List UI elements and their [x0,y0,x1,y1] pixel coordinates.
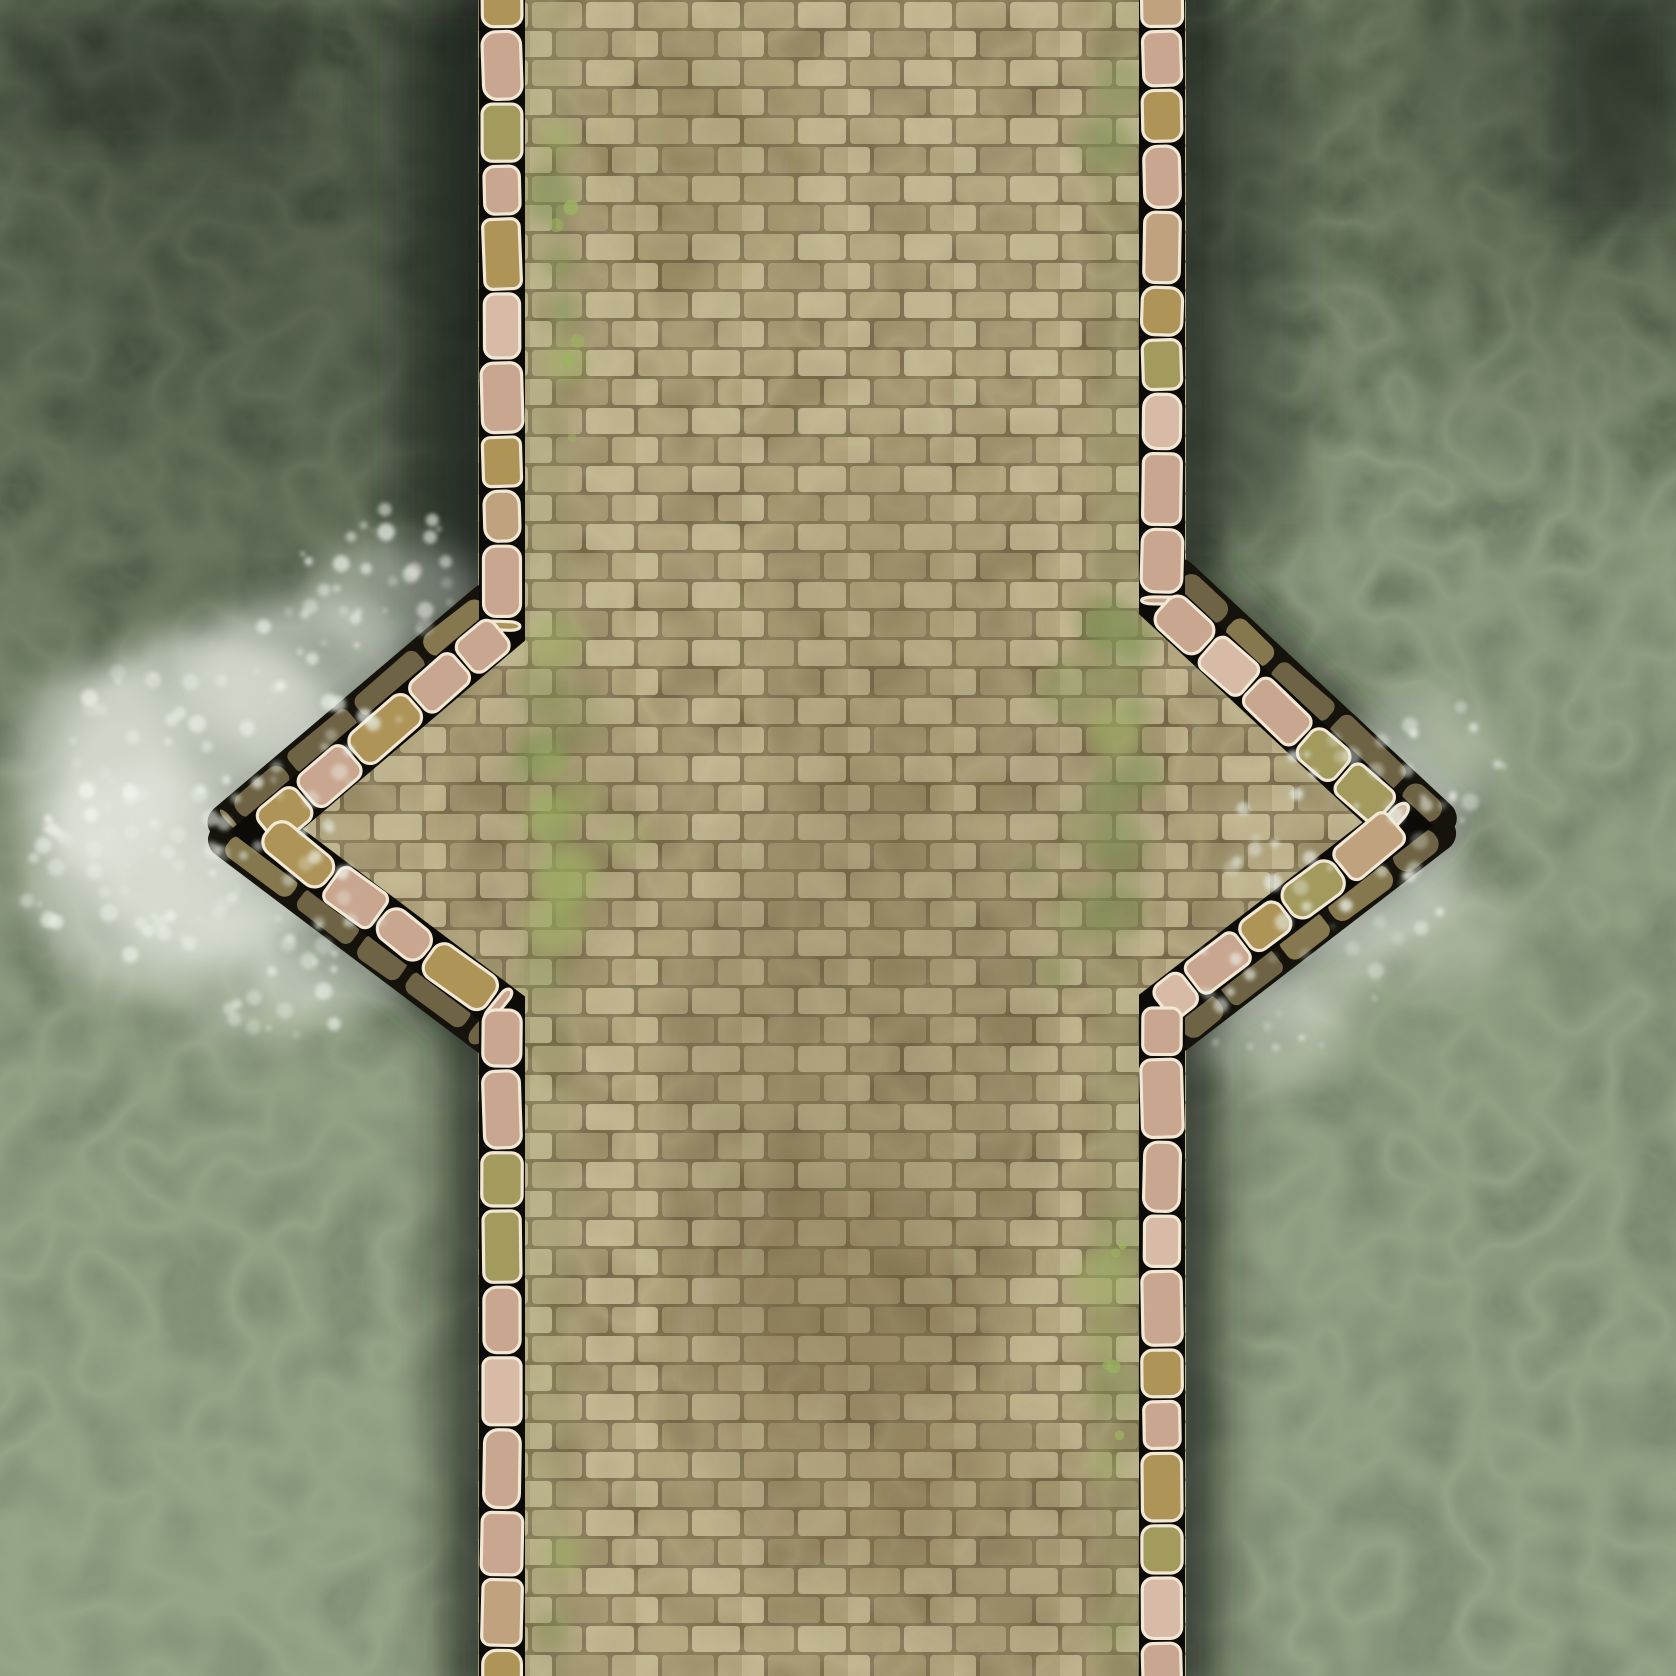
parapet-stone [482,31,523,100]
parapet-stone [483,546,520,616]
foam-fleck [120,885,130,895]
foam-fleck [1276,1010,1283,1017]
foam-fleck [240,721,255,736]
moss-patch [1061,800,1123,862]
foam-fleck [281,936,297,952]
foam-fleck [426,514,439,527]
foam-fleck [165,910,176,921]
moss-patch [1119,753,1163,797]
foam-fleck [1493,760,1502,769]
foam-fleck [1438,801,1447,810]
foam-fleck [170,827,186,843]
foam-fleck [341,911,346,916]
parapet-stone [1142,1526,1182,1573]
foam-fleck [325,729,337,741]
foam-fleck [1448,794,1457,803]
moss-patch [536,792,561,817]
foam-fleck [47,859,64,876]
foam-fleck [441,577,452,588]
parapet-stone [484,491,521,542]
foam-fleck [1272,1044,1280,1052]
parapet-stone [1143,394,1181,449]
foam-fleck [446,599,453,606]
foam-fleck [209,641,213,645]
foam-fleck [1270,838,1279,847]
foam-fleck [339,606,349,616]
moss-patch [562,779,600,817]
moss-patch [1077,117,1134,174]
foam-fleck [275,791,285,801]
foam-fleck [1401,872,1409,880]
foam-fleck [302,791,319,808]
foam-fleck [35,837,52,854]
foam-fleck [98,766,111,779]
foam-fleck [150,672,158,680]
parapet-stone [482,437,522,487]
foam-fleck [1230,953,1243,966]
foam-fleck [161,846,175,860]
foam-fleck [135,917,148,930]
foam-fleck [149,819,160,830]
foam-fleck [355,608,363,616]
moss-patch [1103,1618,1133,1648]
foam-fleck [1353,803,1359,809]
foam-fleck [275,916,281,922]
foam-fleck [357,709,372,724]
parapet-stone [482,218,521,289]
parapet-stone [1144,212,1181,283]
foam-fleck [266,699,271,704]
foam-fleck [28,852,39,863]
deck-dirt-stain [880,1420,1120,1676]
foam-fleck [1264,874,1282,892]
foam-fleck [320,742,329,751]
foam-fleck [251,776,263,788]
foam-fleck [1232,856,1243,867]
parapet-stone [1143,1008,1182,1055]
foam-fleck [84,807,99,822]
foam-fleck [122,784,137,799]
foam-fleck [256,619,271,634]
parapet-stone [483,1429,520,1507]
foam-fleck [1411,832,1428,849]
foam-fleck [43,821,54,832]
foam-fleck [49,914,64,929]
foam-fleck [209,870,215,876]
foam-fleck [270,776,277,783]
foam-fleck [246,1020,261,1035]
foam-fleck [1469,723,1479,733]
foam-fleck [70,737,78,745]
foam-fleck [1387,807,1404,824]
foam-fleck [1435,907,1444,916]
foam-fleck [228,1013,241,1026]
foam-fleck [83,700,101,718]
foam-fleck [383,608,387,612]
foam-fleck [308,850,322,864]
foam-fleck [253,841,264,852]
battle-map [0,0,1676,1676]
foam-fleck [354,642,360,648]
foam-fleck [335,866,348,879]
moss-patch [1073,1250,1136,1313]
foam-fleck [1287,750,1299,762]
foam-fleck [360,563,372,575]
foam-fleck [182,936,196,950]
foam-fleck [282,874,295,887]
foam-fleck [79,782,95,798]
moss-spark [1111,1248,1120,1257]
foam-fleck [321,640,327,646]
foam-fleck [267,966,277,976]
foam-fleck [1374,916,1386,928]
moss-patch [1096,60,1146,110]
foam-fleck [1376,866,1388,878]
foam-fleck [344,922,349,927]
moss-patch [527,895,586,954]
foam-fleck [1244,969,1256,981]
foam-fleck [1392,932,1404,944]
parapet-stone [1143,1142,1181,1212]
parapet-stone [1142,90,1182,142]
foam-fleck [293,1031,301,1039]
foam-fleck [1248,843,1262,857]
foam-fleck [331,764,348,781]
foam-fleck [191,785,208,802]
foam-fleck [1414,921,1428,935]
foam-fleck [182,674,199,691]
foam-fleck [1345,941,1360,956]
parapet-stone [1142,31,1182,86]
foam-fleck [317,584,330,597]
foam-fleck [304,557,313,566]
foam-fleck [1251,833,1261,843]
foam-fleck [86,863,102,879]
foam-fleck [1226,987,1235,996]
foam-fleck [1399,880,1406,887]
foam-fleck [104,803,113,812]
foam-fleck [1299,948,1311,960]
foam-fleck [321,694,338,711]
foam-fleck [125,730,140,745]
foam-fleck [101,826,116,841]
parapet-stone [483,1211,521,1283]
foam-fleck [370,528,375,533]
foam-fleck [231,793,241,803]
foam-fleck [1402,717,1418,733]
moss-patch [1123,694,1152,723]
foam-fleck [300,552,305,557]
moss-patch [544,819,573,848]
foam-fleck [1320,1043,1325,1048]
foam-fleck [1327,732,1341,746]
foam-fleck [1368,963,1384,979]
foam-fleck [215,897,230,912]
foam-fleck [377,523,395,541]
foam-fleck [136,788,149,801]
foam-fleck [1400,764,1413,777]
shadow-right-column [1188,0,1304,540]
foam-fleck [360,521,368,529]
foam-fleck [1462,793,1479,810]
foam-fleck [346,531,357,542]
parapet-stone [1141,529,1183,593]
parapet-stone [1144,1216,1180,1266]
foam-fleck [239,851,248,860]
parapet-stone [1143,146,1180,208]
foam-fleck [125,863,130,868]
foam-fleck [343,745,354,756]
foam-fleck [1268,953,1278,963]
foam-fleck [276,1002,293,1019]
foam-fleck [423,530,437,544]
moss-spark [571,334,585,348]
foam-fleck [1343,747,1361,765]
foam-fleck [333,555,350,572]
foam-fleck [1237,802,1250,815]
deck-dirt-stain [610,30,790,270]
parapet-stone [1144,1401,1181,1448]
foam-fleck [271,761,283,773]
foam-fleck [417,602,434,619]
moss-patch [1037,952,1075,990]
foam-fleck [189,920,194,925]
moss-patch [1038,659,1101,722]
foam-fleck [300,610,309,619]
parapet-stone [482,1070,521,1148]
foam-fleck [253,667,259,673]
foam-fleck [164,737,173,746]
parapet-stone [482,1153,523,1206]
foam-fleck [378,503,392,517]
foam-fleck [336,890,351,905]
foam-fleck [395,716,402,723]
parapet-stone [1142,1578,1182,1639]
moss-patch [1087,1446,1124,1483]
moss-patch [541,123,576,158]
foam-fleck [1263,1022,1272,1031]
moss-patch [1052,888,1110,946]
parapet-stone [483,1650,522,1676]
foam-fleck [148,848,154,854]
foam-fleck [217,815,232,830]
moss-patch [536,1610,571,1645]
parapet-stone [1142,1453,1182,1521]
foam-fleck [202,810,219,827]
foam-fleck [315,983,332,1000]
foam-fleck [1301,901,1312,912]
foam-fleck [100,904,118,922]
foam-fleck [56,829,64,837]
foam-fleck [406,562,422,578]
foam-fleck [85,840,103,858]
foam-fleck [1212,1039,1219,1046]
foam-fleck [1198,986,1207,995]
foam-fleck [98,886,110,898]
moss-spark [1115,1430,1125,1440]
parapet-stone [1142,1271,1183,1346]
moss-spark [549,218,563,232]
parapet-stone [482,104,522,161]
foam-fleck [284,607,294,617]
foam-fleck [296,648,303,655]
foam-fleck [1327,865,1333,871]
foam-fleck [122,946,139,963]
foam-fleck [20,894,34,908]
foam-fleck [1330,924,1335,929]
parapet-stone [1141,0,1182,27]
shadow-top-right-corner [1560,0,1676,220]
moss-patch [543,246,576,279]
foam-fleck [1304,751,1311,758]
foam-fleck [1200,948,1207,955]
foam-fleck [232,999,242,1009]
foam-fleck [246,990,262,1006]
foam-fleck [165,713,178,726]
parapet-stone [483,1010,522,1067]
shadow-top-left-corner [0,0,300,150]
foam-fleck [332,584,340,592]
moss-spark [561,353,574,366]
moss-patch [603,814,650,861]
foam-fleck [327,1017,341,1031]
moss-patch [544,1535,582,1573]
moss-spark [564,200,579,215]
foam-fleck [196,916,201,921]
moss-patch [1082,1318,1125,1361]
foam-fleck [1247,1043,1253,1049]
foam-fleck [306,653,319,666]
foam-fleck [1460,818,1464,822]
foam-fleck [1293,879,1309,895]
parapet-stone [484,1287,520,1353]
moss-patch [550,295,581,326]
parapet-stone [483,1358,521,1425]
foam-fleck [37,902,41,906]
foam-fleck [299,828,307,836]
parapet-stone [484,166,521,215]
foam-fleck [315,936,333,954]
moss-patch [528,616,582,670]
foam-fleck [201,840,217,856]
foam-fleck [110,778,115,783]
foam-fleck [346,779,353,786]
foam-fleck [312,959,318,965]
parapet-stone [482,0,522,27]
parapet-stone [481,1512,523,1575]
foam-fleck [124,825,139,840]
foam-fleck [1290,787,1303,800]
foam-fleck [215,675,227,687]
foam-fleck [1455,701,1467,713]
foam-fleck [1375,734,1389,748]
moss-spark [1119,1242,1127,1250]
foam-fleck [1339,899,1352,912]
foam-fleck [1299,1035,1305,1041]
moss-patch [1014,851,1048,885]
parapet-stone [1142,453,1181,524]
foam-fleck [1368,763,1385,780]
foam-fleck [201,741,213,753]
parapet-stone [481,362,524,433]
foam-fleck [234,886,241,893]
foam-fleck [222,775,231,784]
parapet-stone [1142,1350,1183,1397]
foam-fleck [275,681,286,692]
parapet-stone [484,294,520,358]
foam-fleck [1309,769,1318,778]
foam-fleck [437,527,442,532]
moss-patch [516,951,564,999]
foam-fleck [331,949,339,957]
foam-fleck [1303,851,1317,865]
moss-spark [1103,1361,1112,1370]
parapet-stone [1141,287,1183,336]
foam-fleck [1420,799,1433,812]
foam-fleck [266,1025,271,1030]
foam-fleck [439,555,452,568]
moss-spark [568,433,577,442]
foam-fleck [315,923,322,930]
foam-fleck [330,966,337,973]
parapet-stone [1142,339,1182,390]
deck-dirt-stain [760,460,1020,840]
foam-fleck [388,576,398,586]
foam-fleck [326,825,336,835]
foam-fleck [72,758,83,769]
foam-fleck [375,916,387,928]
foam-fleck [1401,801,1412,812]
parapet-stone [1140,1059,1183,1138]
parapet-stone [1142,1643,1182,1676]
foam-fleck [1213,998,1228,1013]
foam-fleck [188,715,206,733]
foam-fleck [172,859,185,872]
moss-patch [536,746,567,777]
foam-fleck [416,619,434,637]
parapet-stone [481,1579,522,1646]
foam-fleck [1275,913,1293,931]
bridge-map-canvas [0,0,1676,1676]
foam-fleck [110,665,126,681]
foam-fleck [1372,996,1377,1001]
foam-fleck [1501,763,1507,769]
